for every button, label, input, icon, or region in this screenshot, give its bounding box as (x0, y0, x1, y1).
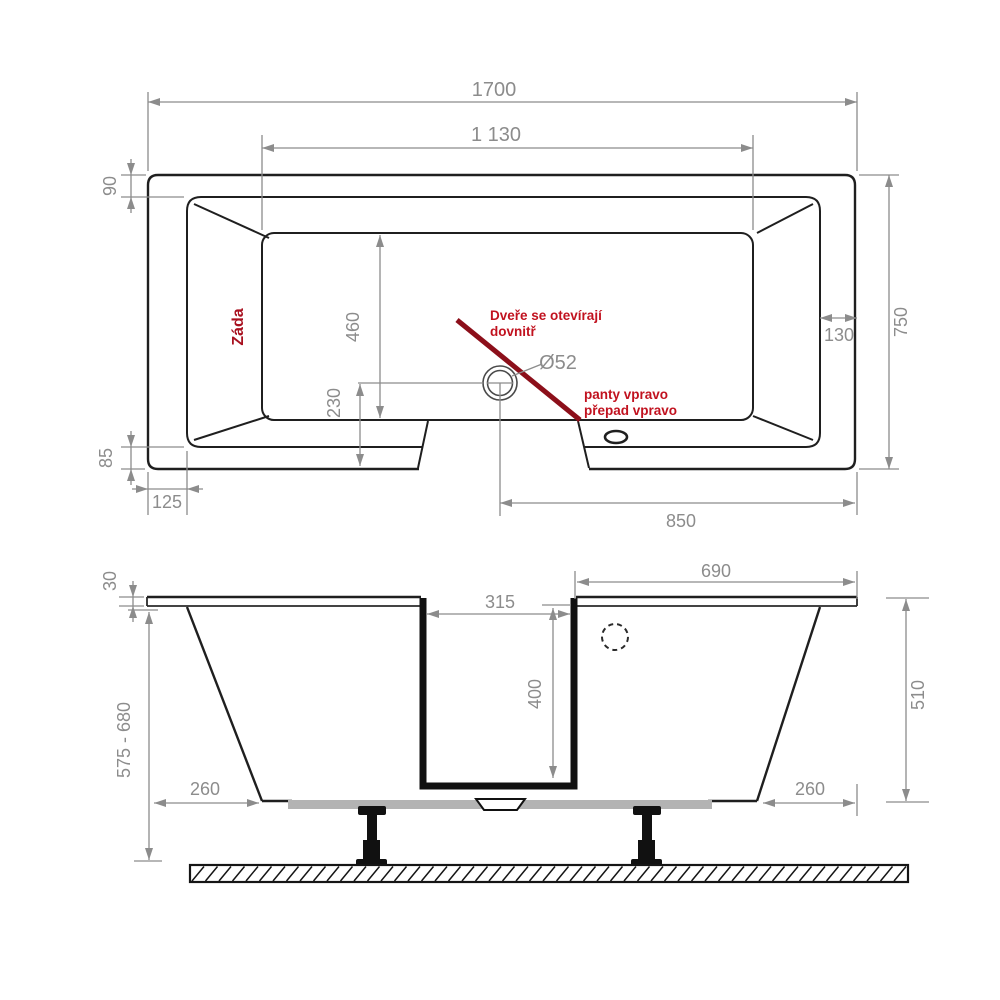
front-view: 30 575 - 680 260 315 400 690 510 260 (100, 561, 928, 882)
technical-drawing-page: 1700 1 130 90 750 130 460 230 85 125 850… (0, 0, 1000, 1000)
dim-drain-diameter: Ø52 (539, 352, 577, 374)
door-note-line1: Dveře se otevírají (490, 308, 603, 323)
side-wall-right (757, 607, 820, 801)
dim-height-range: 575 - 680 (114, 702, 134, 778)
foot-right (631, 806, 662, 867)
label-back: Záda (230, 308, 247, 345)
dim-door-opening-depth: 400 (525, 679, 545, 709)
corner-chamfer-bl (194, 416, 269, 440)
door-recess (423, 598, 574, 786)
overflow-dashed-circle (602, 624, 628, 650)
dim-rim-front-left: 125 (152, 492, 182, 512)
top-view: 1700 1 130 90 750 130 460 230 85 125 850… (96, 79, 911, 531)
dim-left-inset: 260 (190, 779, 220, 799)
door-step-left (418, 421, 428, 468)
dim-overall-length: 1700 (472, 79, 517, 101)
corner-chamfer-tr (757, 204, 813, 233)
dim-right-inset: 260 (795, 779, 825, 799)
dim-basin-length: 1 130 (471, 124, 521, 146)
dim-rim-back: 90 (100, 176, 120, 196)
dim-body-height: 510 (908, 680, 928, 710)
door-note-line2: dovnitř (490, 324, 536, 339)
dim-rim-front: 85 (96, 448, 116, 468)
dim-basin-width: 460 (343, 312, 363, 342)
dim-drain-to-front: 230 (324, 388, 344, 418)
corner-chamfer-br (753, 416, 813, 440)
side-wall-left (187, 607, 262, 801)
dim-door-opening-width: 315 (485, 592, 515, 612)
door-step-right (578, 421, 589, 468)
bathtub-drawing: 1700 1 130 90 750 130 460 230 85 125 850… (0, 0, 1000, 1000)
dim-rim-right: 130 (824, 325, 854, 345)
dim-top-right-length: 690 (701, 561, 731, 581)
drain-fitting (476, 799, 525, 810)
overflow-hole (605, 431, 627, 443)
corner-chamfer-tl (194, 204, 269, 238)
dim-door-to-right-edge: 850 (666, 511, 696, 531)
dim-apron-top-thickness: 30 (100, 571, 120, 591)
dim-overall-width: 750 (891, 307, 911, 337)
hinge-note-line1: panty vpravo (584, 387, 668, 402)
foot-left (356, 806, 387, 867)
hinge-note-line2: přepad vpravo (584, 403, 677, 418)
